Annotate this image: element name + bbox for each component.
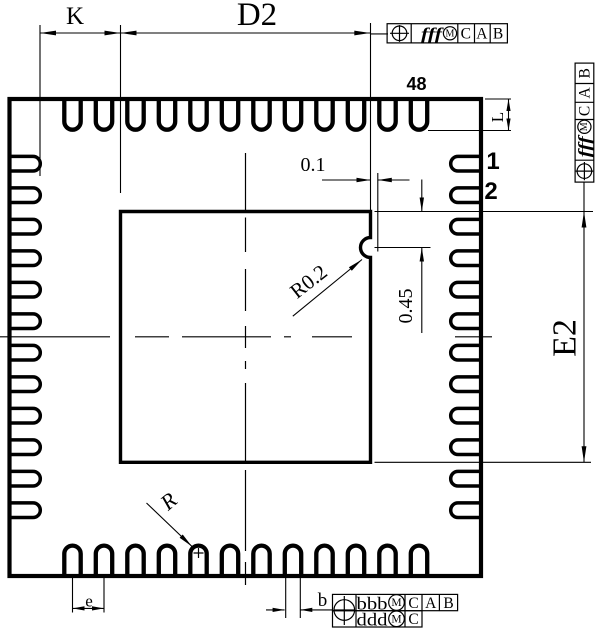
svg-text:A: A <box>577 87 594 99</box>
svg-text:C: C <box>461 26 471 43</box>
svg-text:D2: D2 <box>237 0 277 33</box>
svg-text:B: B <box>577 68 594 78</box>
svg-text:E2: E2 <box>547 319 584 357</box>
svg-text:48: 48 <box>406 74 426 94</box>
svg-text:M: M <box>446 29 455 40</box>
svg-text:M: M <box>579 122 590 131</box>
svg-text:e: e <box>85 592 93 611</box>
svg-text:A: A <box>425 595 437 612</box>
svg-text:C: C <box>408 611 418 628</box>
svg-text:C: C <box>408 595 418 612</box>
svg-text:M: M <box>391 613 401 625</box>
svg-text:A: A <box>476 26 488 43</box>
svg-text:B: B <box>443 595 453 612</box>
svg-text:0.45: 0.45 <box>395 289 417 324</box>
svg-text:M: M <box>391 597 401 609</box>
svg-text:L: L <box>488 112 507 122</box>
svg-text:1: 1 <box>486 148 499 175</box>
svg-text:ddd: ddd <box>357 610 388 630</box>
svg-text:0.1: 0.1 <box>301 154 326 176</box>
svg-text:fff: fff <box>421 25 445 44</box>
svg-text:b: b <box>318 590 328 611</box>
svg-text:fff: fff <box>575 133 594 157</box>
svg-text:B: B <box>493 26 503 43</box>
svg-text:C: C <box>577 106 594 116</box>
svg-text:K: K <box>66 3 84 30</box>
svg-text:2: 2 <box>484 178 497 205</box>
